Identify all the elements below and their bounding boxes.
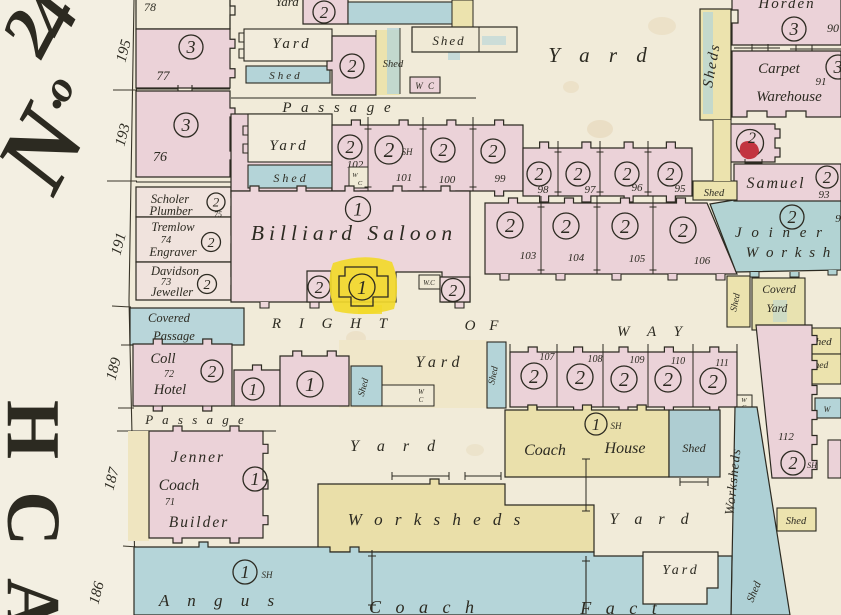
svg-text:2: 2: [348, 56, 357, 76]
svg-text:99: 99: [495, 173, 507, 185]
svg-text:SH: SH: [262, 570, 274, 580]
svg-text:Jeweller: Jeweller: [151, 285, 193, 299]
svg-text:2: 2: [204, 278, 211, 293]
svg-text:W o r k s h e d s: W o r k s h e d s: [348, 510, 525, 529]
svg-text:Engraver: Engraver: [148, 245, 196, 259]
svg-text:1: 1: [251, 469, 260, 489]
svg-text:106: 106: [694, 255, 711, 267]
svg-text:P a s s a g e: P a s s a g e: [144, 412, 247, 427]
svg-text:Coach: Coach: [524, 442, 566, 459]
svg-text:SH: SH: [807, 461, 818, 470]
svg-text:95: 95: [675, 183, 687, 195]
svg-text:2: 2: [823, 168, 832, 187]
svg-text:Yard: Yard: [269, 138, 308, 154]
svg-text:Shed: Shed: [269, 70, 302, 82]
svg-text:Shed: Shed: [383, 59, 404, 70]
svg-text:1: 1: [249, 380, 258, 399]
svg-text:3: 3: [186, 37, 196, 57]
svg-text:2: 2: [208, 362, 217, 381]
svg-text:Carpet: Carpet: [758, 61, 801, 77]
svg-text:91: 91: [816, 76, 827, 88]
svg-text:2: 2: [678, 220, 688, 242]
svg-text:9: 9: [835, 213, 841, 225]
svg-text:Jenner: Jenner: [171, 449, 225, 466]
svg-text:HCA: HCA: [0, 400, 75, 615]
svg-text:SH: SH: [402, 147, 414, 157]
svg-text:Shed: Shed: [704, 188, 725, 199]
svg-text:2: 2: [439, 140, 448, 160]
svg-text:105: 105: [629, 253, 646, 265]
svg-text:3: 3: [181, 115, 191, 135]
svg-text:Yard: Yard: [662, 563, 699, 578]
svg-text:W: W: [741, 397, 747, 404]
svg-text:W.C: W.C: [423, 279, 435, 287]
svg-text:2: 2: [623, 164, 632, 184]
svg-text:Warehouse: Warehouse: [756, 89, 822, 105]
svg-text:2: 2: [748, 130, 756, 147]
svg-text:2: 2: [315, 278, 324, 297]
svg-text:Hotel: Hotel: [153, 382, 186, 398]
svg-text:House: House: [604, 440, 646, 457]
svg-text:76: 76: [153, 150, 167, 165]
svg-text:110: 110: [671, 356, 685, 367]
svg-text:2: 2: [575, 367, 585, 389]
svg-text:Covered: Covered: [148, 311, 191, 325]
svg-text:R I G H T: R I G H T: [271, 316, 394, 332]
svg-text:Samuel: Samuel: [746, 175, 805, 192]
svg-text:Builder: Builder: [169, 514, 230, 531]
svg-text:2: 2: [529, 366, 539, 388]
svg-text:Shed: Shed: [432, 33, 465, 48]
svg-text:1: 1: [357, 277, 367, 299]
svg-text:1: 1: [241, 562, 250, 582]
svg-text:3: 3: [833, 57, 841, 77]
svg-text:2: 2: [561, 216, 571, 238]
svg-text:Coverd: Coverd: [762, 284, 796, 296]
svg-text:2: 2: [449, 281, 458, 300]
svg-text:SH: SH: [611, 421, 623, 431]
svg-text:2: 2: [620, 216, 630, 238]
svg-text:J o i n e r: J o i n e r: [735, 225, 825, 241]
svg-text:96: 96: [632, 182, 644, 194]
svg-text:Y a r d: Y a r d: [609, 511, 694, 528]
svg-text:98: 98: [538, 184, 550, 196]
svg-text:100: 100: [439, 174, 456, 186]
svg-text:C o a c h: C o a c h: [369, 597, 479, 615]
svg-text:Horden: Horden: [757, 0, 815, 12]
svg-text:72: 72: [164, 369, 174, 380]
svg-text:A n g u s: A n g u s: [158, 591, 281, 610]
svg-text:3: 3: [789, 19, 799, 39]
svg-text:O F: O F: [465, 318, 504, 334]
svg-text:71: 71: [165, 497, 175, 508]
svg-text:Coll: Coll: [151, 351, 176, 367]
svg-text:Shed: Shed: [273, 171, 308, 185]
svg-text:104: 104: [568, 252, 585, 264]
svg-text:Plumber: Plumber: [148, 204, 192, 218]
svg-text:W A Y: W A Y: [617, 324, 689, 340]
svg-text:1: 1: [353, 199, 363, 220]
svg-text:109: 109: [630, 355, 645, 366]
svg-text:111: 111: [715, 358, 729, 369]
svg-text:2: 2: [535, 164, 544, 184]
svg-text:101: 101: [396, 172, 413, 184]
svg-text:77: 77: [157, 68, 171, 83]
svg-text:C: C: [428, 81, 435, 91]
svg-text:Y a r d: Y a r d: [350, 438, 442, 455]
svg-text:C: C: [419, 396, 424, 404]
svg-text:93: 93: [819, 189, 831, 201]
svg-text:2: 2: [213, 194, 220, 209]
svg-text:78: 78: [144, 0, 156, 14]
svg-text:Davidson: Davidson: [150, 264, 199, 278]
svg-text:90: 90: [827, 21, 839, 35]
svg-text:Shed: Shed: [786, 516, 807, 527]
svg-text:2: 2: [320, 3, 329, 22]
svg-text:Shed: Shed: [682, 441, 706, 455]
svg-text:2: 2: [708, 371, 718, 393]
svg-text:108: 108: [588, 354, 603, 365]
svg-text:Coach: Coach: [159, 477, 200, 494]
svg-text:2: 2: [384, 138, 395, 162]
svg-text:Yard: Yard: [767, 303, 788, 315]
svg-text:C: C: [358, 180, 363, 187]
svg-text:103: 103: [520, 250, 537, 262]
svg-text:1: 1: [305, 374, 315, 396]
svg-text:2: 2: [666, 164, 675, 184]
svg-text:2: 2: [574, 164, 583, 184]
svg-text:Yard: Yard: [275, 0, 299, 9]
svg-text:112: 112: [778, 431, 794, 443]
svg-text:2: 2: [208, 236, 215, 251]
svg-text:2: 2: [505, 215, 515, 237]
svg-text:97: 97: [585, 184, 597, 196]
svg-text:Yard: Yard: [415, 354, 464, 371]
svg-text:107: 107: [540, 352, 556, 363]
svg-text:Yard: Yard: [272, 36, 311, 52]
svg-text:1: 1: [592, 415, 601, 434]
svg-text:Y a r d: Y a r d: [548, 43, 654, 67]
svg-text:W o r k s h: W o r k s h: [746, 245, 833, 261]
svg-text:2: 2: [346, 137, 355, 157]
svg-text:2: 2: [489, 141, 498, 161]
svg-text:W: W: [352, 172, 358, 179]
svg-text:2: 2: [789, 453, 798, 473]
svg-text:2: 2: [663, 369, 673, 391]
svg-text:Billiard Saloon: Billiard Saloon: [251, 221, 457, 245]
svg-text:2: 2: [619, 369, 629, 391]
svg-text:Tremlow: Tremlow: [151, 220, 195, 234]
